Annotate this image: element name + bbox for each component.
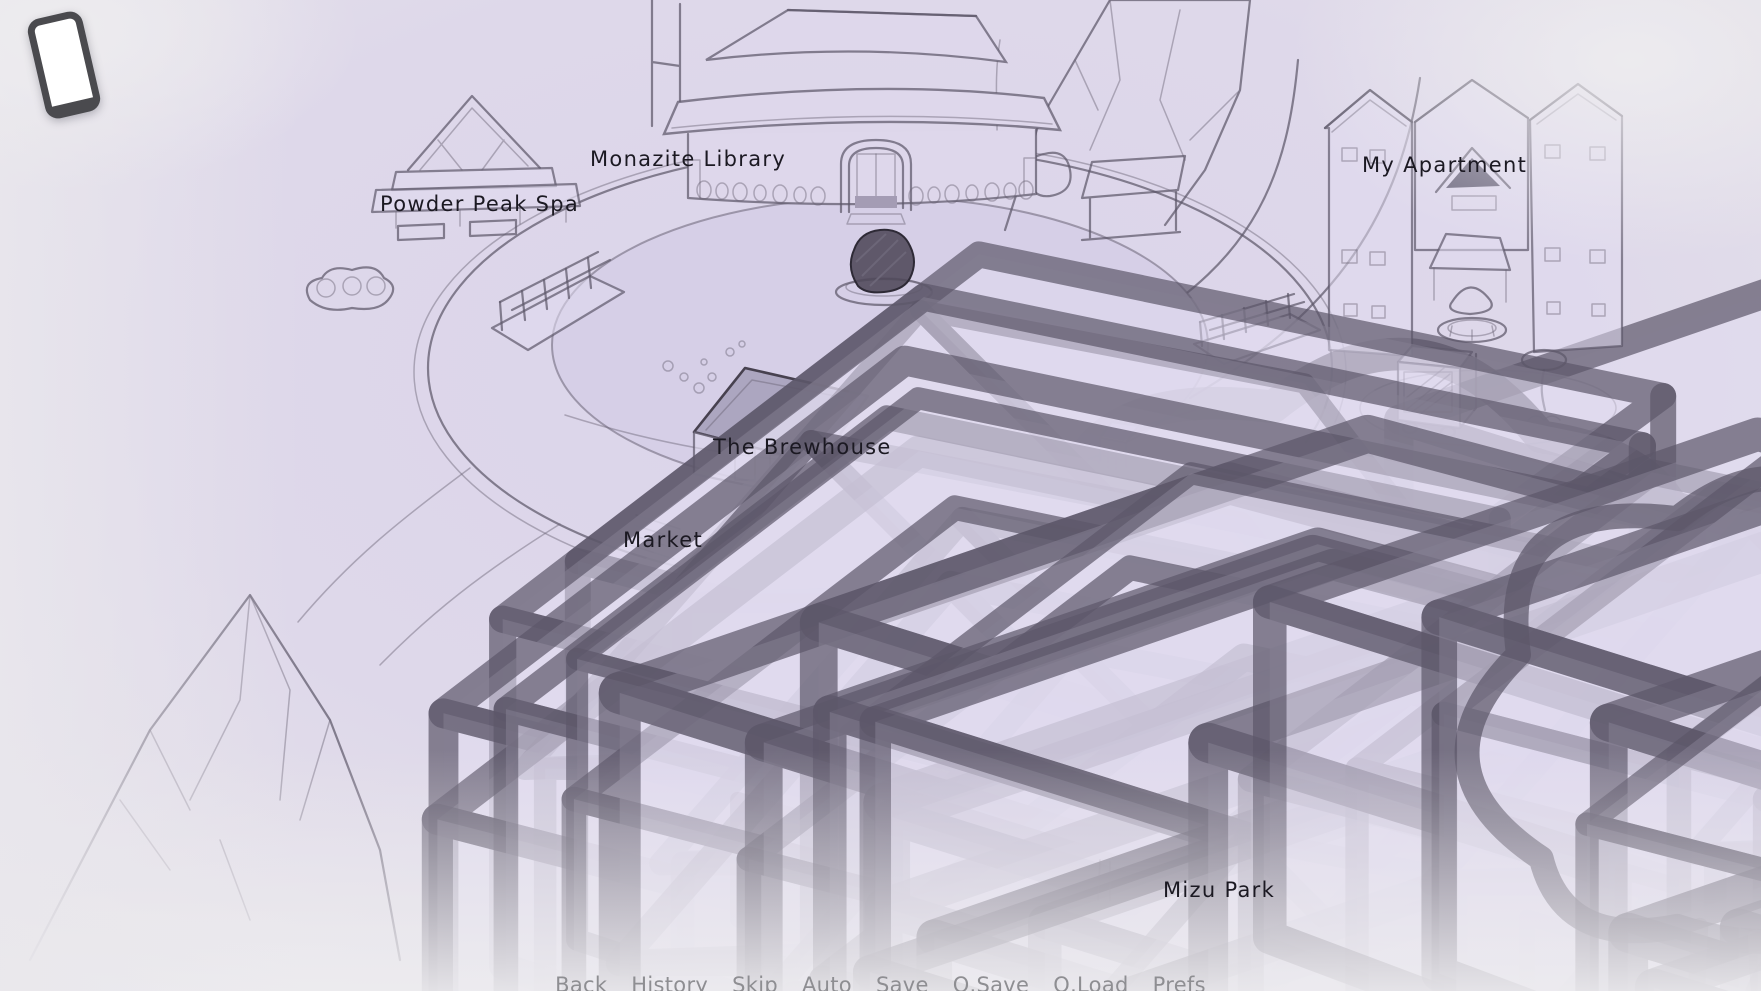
map-location-market[interactable]: Market xyxy=(623,528,703,552)
map-location-my-apartment[interactable]: My Apartment xyxy=(1362,153,1527,177)
quickmenu-item-history[interactable]: History xyxy=(631,973,708,991)
map-location-monazite-library[interactable]: Monazite Library xyxy=(590,147,786,171)
quickmenu-item-back[interactable]: Back xyxy=(555,973,607,991)
quickmenu-item-qload[interactable]: Q.Load xyxy=(1053,973,1128,991)
town-map-screen: Monazite LibraryPowder Peak SpaMy Apartm… xyxy=(0,0,1761,991)
town-map-sketch xyxy=(0,0,1761,991)
quickmenu-item-auto[interactable]: Auto xyxy=(802,973,852,991)
quickmenu-item-save[interactable]: Save xyxy=(876,973,929,991)
quick-menu: BackHistorySkipAutoSaveQ.SaveQ.LoadPrefs xyxy=(0,973,1761,991)
map-location-the-brewhouse[interactable]: The Brewhouse xyxy=(713,435,892,459)
quickmenu-item-prefs[interactable]: Prefs xyxy=(1153,973,1206,991)
map-location-mizu-park[interactable]: Mizu Park xyxy=(1163,878,1275,902)
map-location-powder-peak-spa[interactable]: Powder Peak Spa xyxy=(380,192,579,216)
quickmenu-item-qsave[interactable]: Q.Save xyxy=(953,973,1030,991)
quickmenu-item-skip[interactable]: Skip xyxy=(732,973,778,991)
